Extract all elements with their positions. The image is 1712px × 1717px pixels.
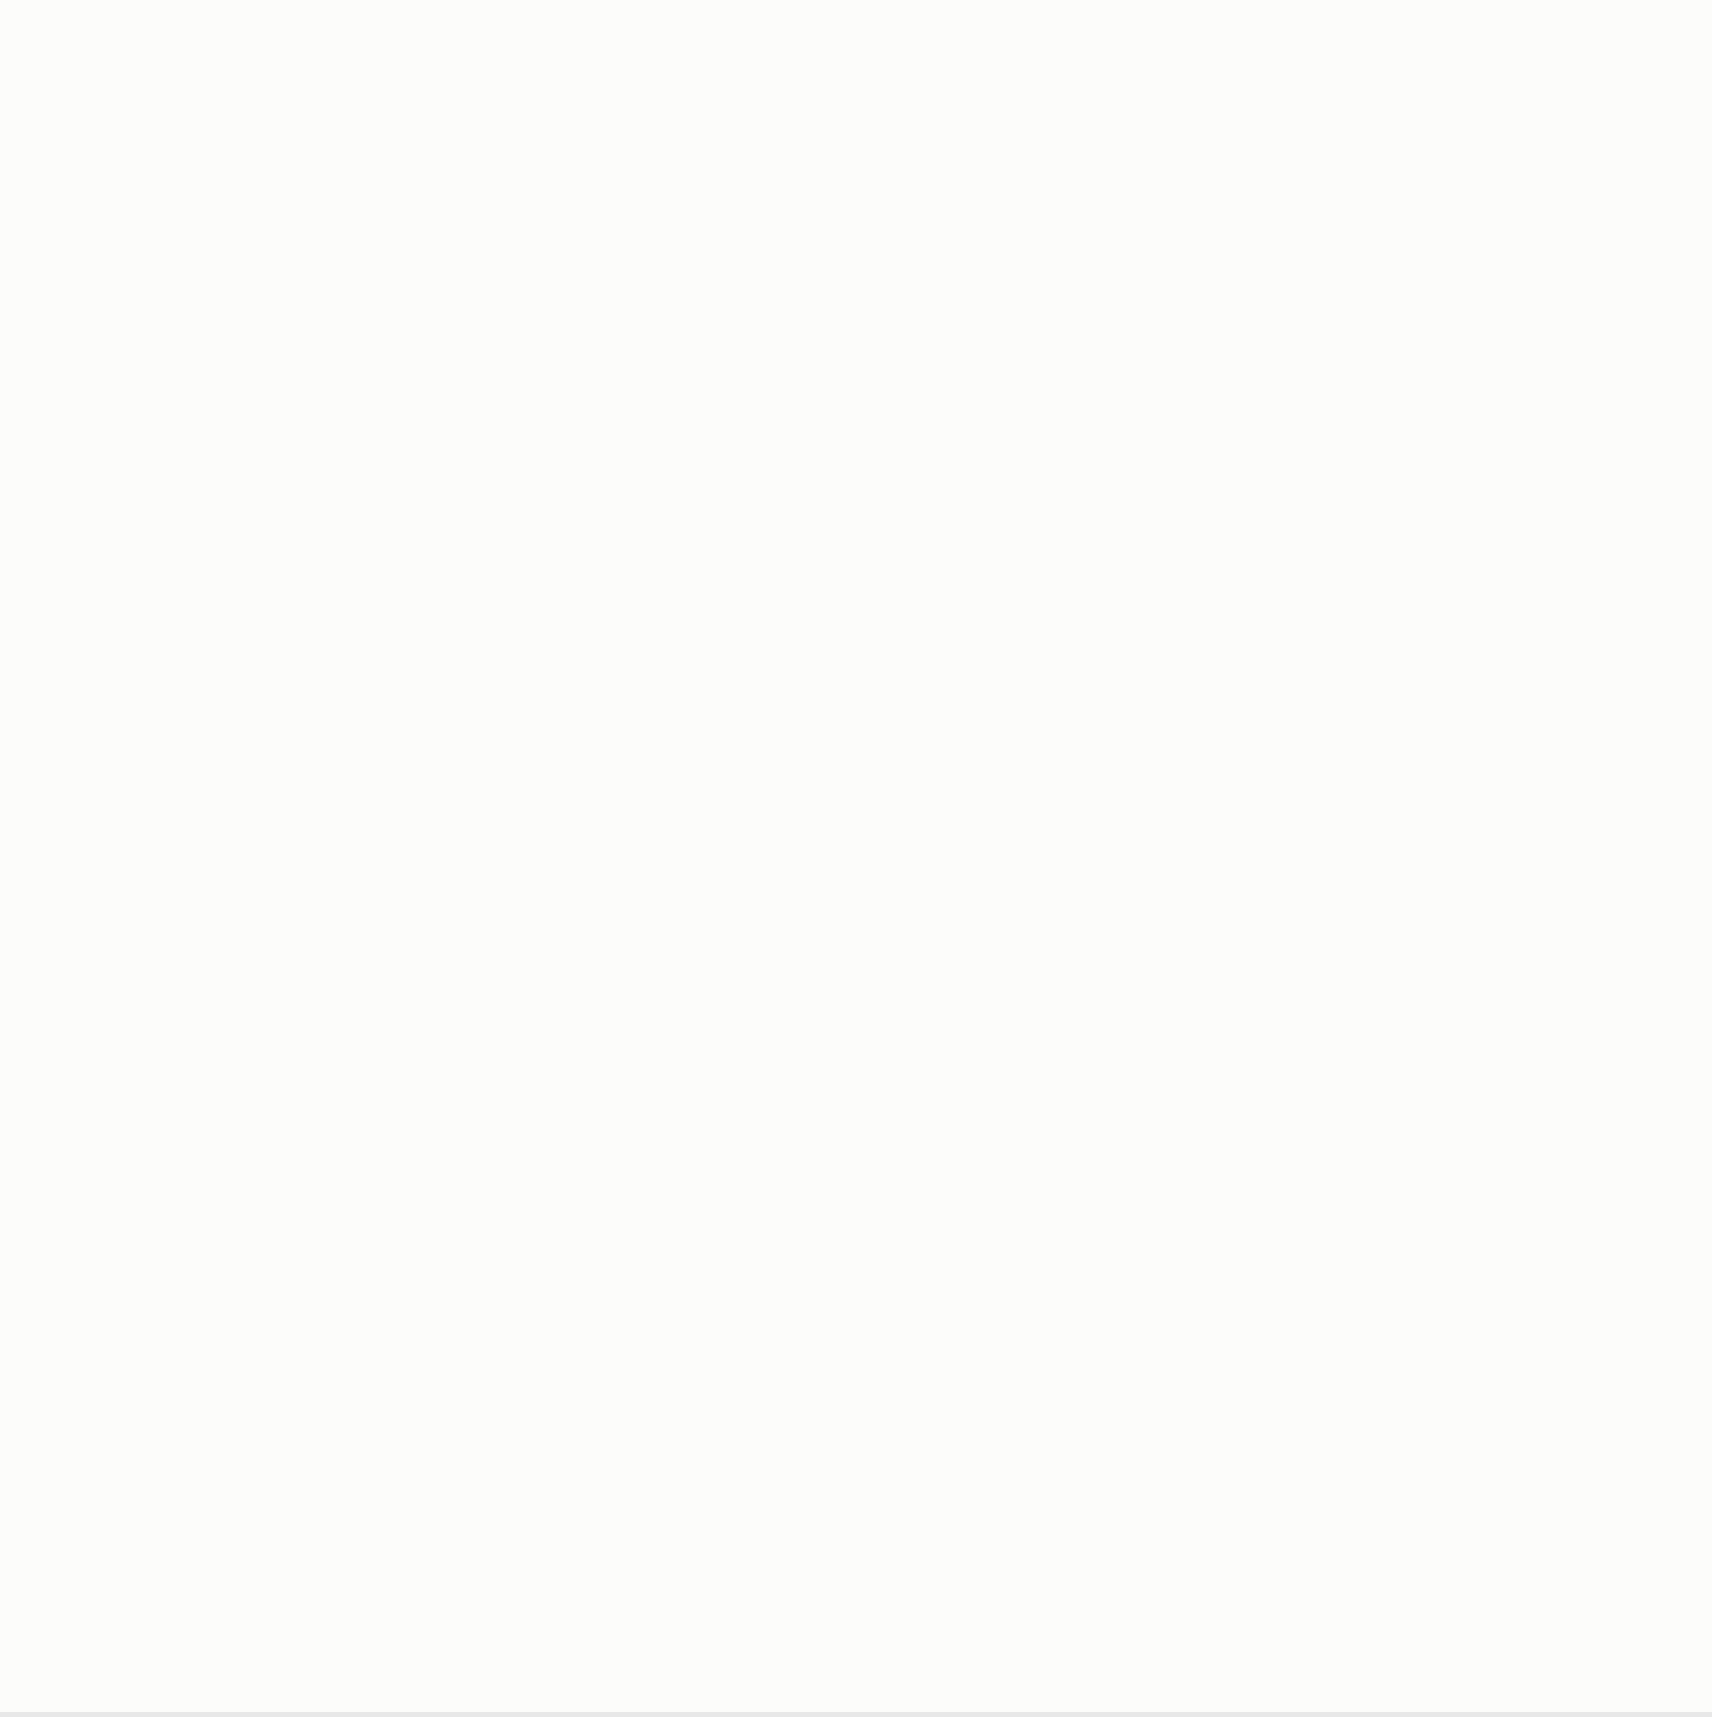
site-plan-page <box>0 0 1712 1712</box>
site-plan-drawing <box>0 0 1712 1712</box>
